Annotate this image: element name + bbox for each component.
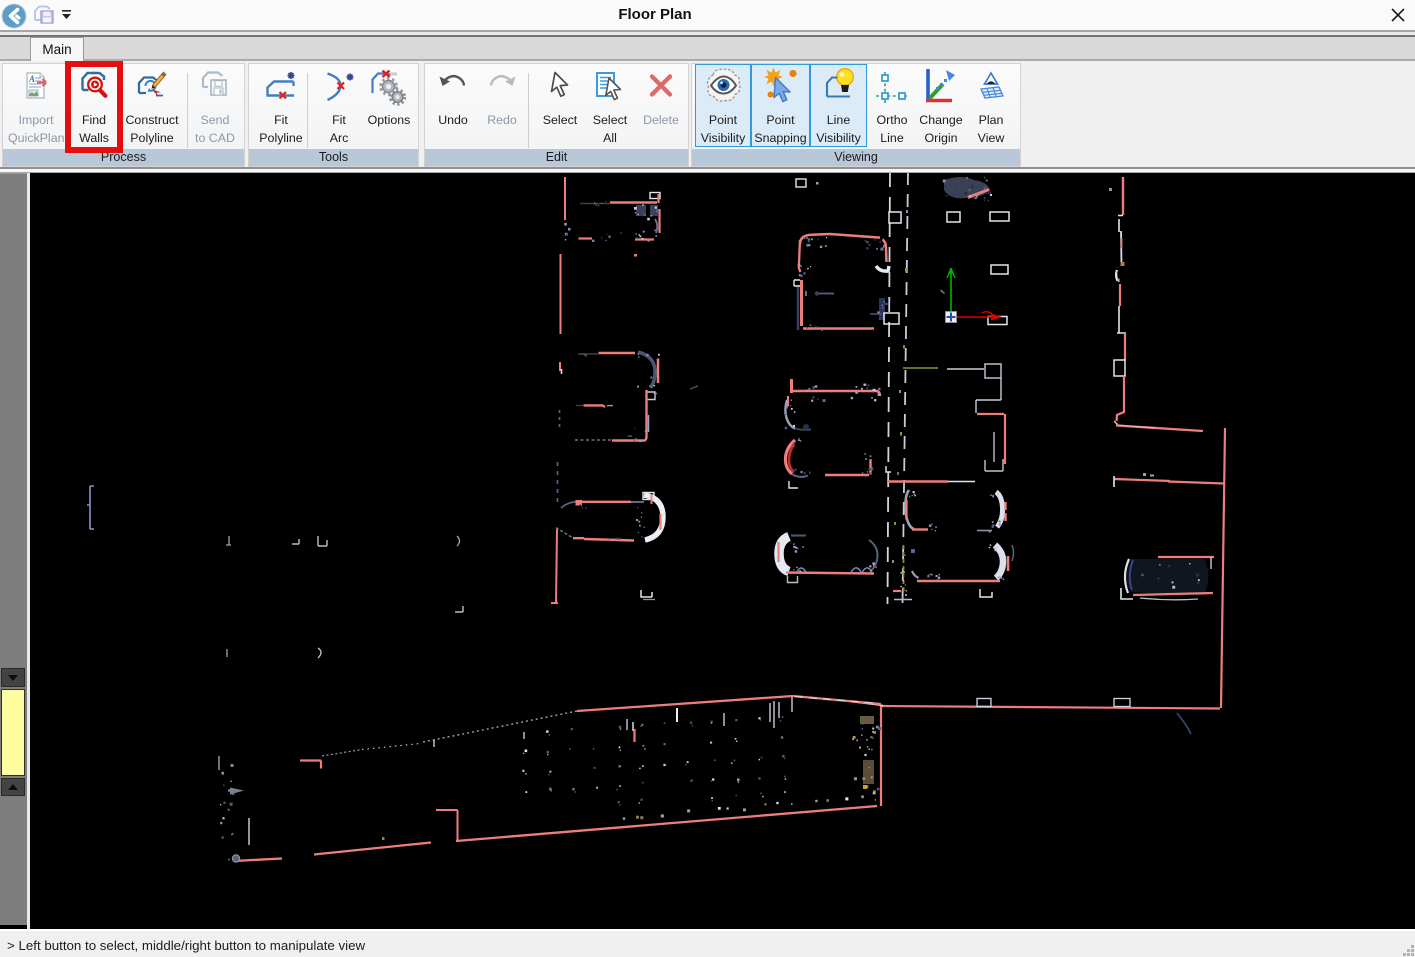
svg-text:A: A — [28, 74, 35, 84]
